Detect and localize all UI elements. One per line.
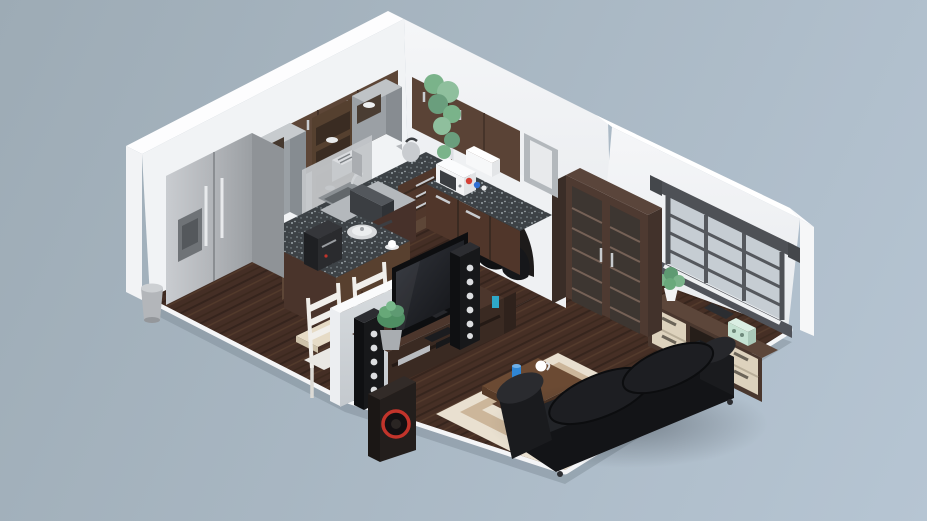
trash-can xyxy=(141,284,163,324)
blue-tumbler xyxy=(492,296,499,308)
isometric-apartment-scene xyxy=(0,0,927,521)
tower-speaker xyxy=(450,242,480,350)
apartment-floorplan-render xyxy=(0,0,927,521)
